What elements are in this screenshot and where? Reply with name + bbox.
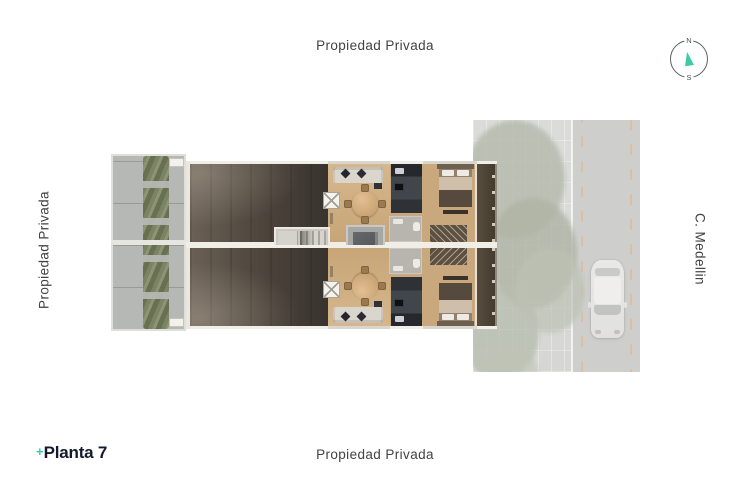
car-mirror xyxy=(624,302,627,308)
bathroom xyxy=(389,248,422,274)
car-rear-window xyxy=(595,268,620,276)
building-floor-plan xyxy=(186,161,497,329)
car-roof xyxy=(594,277,621,304)
bed xyxy=(437,283,474,326)
compass-north-label: N xyxy=(684,37,693,45)
toilet xyxy=(413,259,420,268)
ac-unit xyxy=(323,281,340,298)
bed-headboard xyxy=(437,321,474,326)
kitchen-sink xyxy=(395,316,404,322)
window xyxy=(423,326,477,329)
dining-chair xyxy=(361,184,369,192)
bed-bench xyxy=(443,210,468,214)
floor-plan-page: Propiedad Privada Propiedad Privada Prop… xyxy=(0,0,750,500)
ac-unit xyxy=(323,192,340,209)
wardrobe xyxy=(430,248,467,265)
label-left-propiedad-privada: Propiedad Privada xyxy=(37,191,52,309)
parked-car xyxy=(591,260,624,338)
bed-pillow xyxy=(457,314,469,320)
window xyxy=(328,161,390,164)
terrace-door xyxy=(169,318,184,327)
terrace-area xyxy=(111,154,186,331)
road-edge-line xyxy=(571,120,573,372)
dining-chair xyxy=(361,216,369,224)
balcony-railing-edge xyxy=(495,164,497,242)
terrace-door xyxy=(169,158,184,167)
label-bottom-propiedad-privada: Propiedad Privada xyxy=(0,447,750,462)
side-table xyxy=(374,183,382,189)
apartment-unit xyxy=(186,245,497,329)
bed-pillow xyxy=(457,170,469,176)
roof-deck xyxy=(190,248,328,326)
balcony-wall xyxy=(475,164,477,242)
road xyxy=(572,120,640,372)
label-right-c-medellin: C. Medellin xyxy=(693,213,708,285)
lane-marking xyxy=(581,120,583,372)
bed xyxy=(437,164,474,207)
bathroom xyxy=(389,216,422,242)
wardrobe xyxy=(430,225,467,242)
street-area xyxy=(473,120,640,372)
compass-south-label: S xyxy=(684,74,693,82)
tree-canopy xyxy=(515,248,585,333)
stove xyxy=(394,183,404,191)
lane-marking xyxy=(630,120,632,372)
dining-chair xyxy=(378,200,386,208)
tree-canopy xyxy=(489,198,577,308)
bed-mattress xyxy=(439,300,472,313)
kitchen-sink xyxy=(395,168,404,174)
bathroom-sink xyxy=(393,219,403,224)
side-table xyxy=(374,301,382,307)
tree-canopy xyxy=(477,346,539,372)
bed-pillow xyxy=(442,314,454,320)
dining-chair xyxy=(361,266,369,274)
logo-plus-icon: + xyxy=(36,444,44,459)
kitchen-counter xyxy=(391,164,422,213)
apartment-unit xyxy=(186,161,497,245)
bed-bench xyxy=(443,276,468,280)
dining-chair xyxy=(344,282,352,290)
bed-blanket xyxy=(439,283,472,300)
bed-pillow-row xyxy=(439,313,472,321)
balcony-railing-edge xyxy=(495,248,497,326)
stove xyxy=(394,299,404,307)
car-mirror xyxy=(588,302,591,308)
label-top-propiedad-privada: Propiedad Privada xyxy=(0,38,750,53)
bed-pillow-row xyxy=(439,169,472,177)
planta7-logo: +Planta 7 xyxy=(36,443,107,463)
kitchen-counter xyxy=(391,277,422,326)
dining-chair xyxy=(344,200,352,208)
bed-blanket xyxy=(439,190,472,207)
dining-chair xyxy=(361,298,369,306)
unit-number-tag xyxy=(330,213,333,224)
balcony-wall xyxy=(475,248,477,326)
terrace-divider-wall xyxy=(111,240,186,245)
car-windshield xyxy=(594,305,621,315)
toilet xyxy=(413,222,420,231)
window xyxy=(328,326,390,329)
dining-table xyxy=(352,273,378,299)
compass-icon: N S xyxy=(666,36,712,82)
car-headlight xyxy=(614,330,620,334)
compass-needle-icon xyxy=(683,51,694,66)
bed-pillow xyxy=(442,170,454,176)
dining-table xyxy=(352,191,378,217)
dining-chair xyxy=(378,282,386,290)
bed-mattress xyxy=(439,177,472,190)
bathroom-sink xyxy=(393,266,403,271)
unit-number-tag xyxy=(330,266,333,277)
logo-text: Planta 7 xyxy=(44,443,108,462)
car-headlight xyxy=(595,330,601,334)
